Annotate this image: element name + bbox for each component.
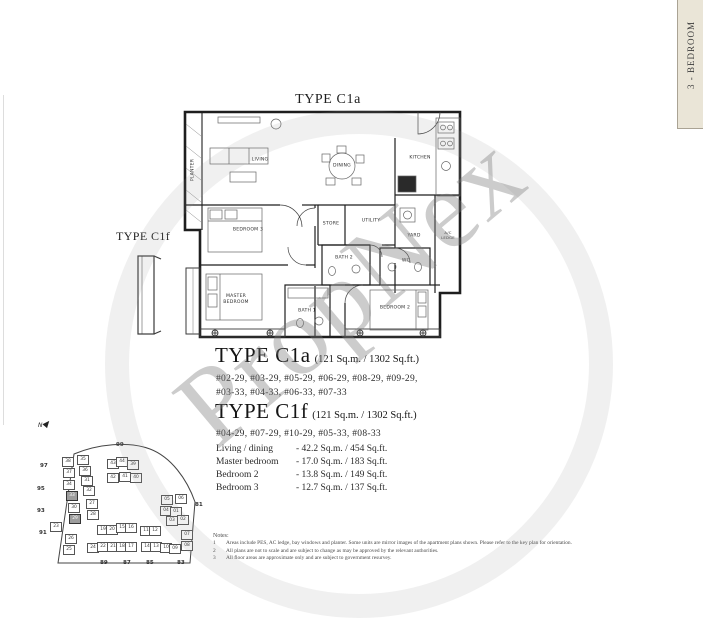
- keyplan-unit-31: 31: [81, 476, 93, 486]
- keyplan-unit-30: 30: [68, 503, 80, 513]
- room-label-bath1: BATH 1: [298, 309, 316, 314]
- keyplan-block-label-93: 93: [37, 508, 45, 514]
- keyplan-unit-08: 08: [181, 541, 193, 551]
- keyplan-unit-27: 27: [86, 499, 98, 509]
- area-label: Bedroom 2: [216, 470, 296, 480]
- room-label-living: LIVING: [252, 158, 269, 163]
- room-label-planter: PLANTER: [191, 159, 196, 181]
- area-value: - 13.8 Sq.m. / 149 Sq.ft.: [296, 470, 476, 480]
- key-plan: N 38353736343133323027292823262524222118…: [30, 418, 208, 578]
- area-row-living-dining: Living / dining - 42.2 Sq.m. / 454 Sq.ft…: [216, 444, 476, 454]
- area-label: Bedroom 3: [216, 483, 296, 493]
- note-text: All floor areas are approximate only and…: [226, 555, 392, 563]
- room-label-wc: WC: [402, 259, 410, 264]
- area-label: Living / dining: [216, 444, 296, 454]
- keyplan-unit-06: 06: [175, 494, 187, 504]
- room-label-ac-ledge: A/C LEDGE: [441, 231, 456, 241]
- room-label-yard: YARD: [407, 234, 420, 239]
- keyplan-unit-28: 28: [87, 510, 99, 520]
- floor-plan: PLANTER LIVING DINING KITCHEN STORE UTIL…: [130, 108, 470, 343]
- keyplan-unit-35: 35: [77, 455, 89, 465]
- scan-edge: [3, 95, 4, 425]
- keyplan-block-label-97: 97: [40, 463, 48, 469]
- room-label-bath2: BATH 2: [335, 256, 353, 261]
- keyplan-unit-16: 16: [125, 523, 137, 533]
- area-value: - 42.2 Sq.m. / 454 Sq.ft.: [296, 444, 476, 454]
- notes-title: Notes:: [213, 533, 693, 539]
- type-c1a-units-line1: #02-29, #03-29, #05-29, #06-29, #08-29, …: [216, 374, 418, 384]
- keyplan-block-label-87: 87: [123, 560, 131, 566]
- keyplan-unit-25: 25: [63, 545, 75, 555]
- plan-title-type-c1a: TYPE C1a: [258, 92, 398, 108]
- type-c1a-area: (121 Sq.m. / 1302 Sq.ft.): [315, 354, 419, 365]
- keyplan-block-label-99: 99: [116, 442, 124, 448]
- keyplan-block-label-83: 83: [177, 560, 185, 566]
- type-c1f-units-line1: #04-29, #07-29, #10-29, #05-33, #08-33: [216, 429, 381, 439]
- north-arrow: N: [38, 420, 50, 429]
- keyplan-unit-23: 23: [50, 522, 62, 532]
- keyplan-block-label-95: 95: [37, 486, 45, 492]
- area-value: - 17.0 Sq.m. / 183 Sq.ft.: [296, 457, 476, 467]
- keyplan-block-label-89: 89: [100, 560, 108, 566]
- keyplan-unit-29: 29: [69, 514, 81, 524]
- keyplan-unit-40: 40: [130, 473, 142, 483]
- category-tab-label: 3 - BEDROOM: [686, 21, 696, 107]
- keyplan-unit-09: 09: [169, 544, 181, 554]
- keyplan-unit-42: 42: [107, 473, 119, 483]
- notes-block: Notes: 1 Areas include PES, AC ledge, ba…: [213, 533, 693, 563]
- type-c1a-heading: TYPE C1a(121 Sq.m. / 1302 Sq.ft.): [215, 343, 419, 368]
- area-label: Master bedroom: [216, 457, 296, 467]
- area-row-master-bedroom: Master bedroom - 17.0 Sq.m. / 183 Sq.ft.: [216, 457, 476, 467]
- category-tab-3-bedroom: 3 - BEDROOM: [677, 0, 703, 129]
- keyplan-unit-05: 05: [161, 495, 173, 505]
- area-row-bedroom3: Bedroom 3 - 12.7 Sq.m. / 137 Sq.ft.: [216, 483, 476, 493]
- brochure-page: { "page": { "watermark": "PropNex", "tab…: [0, 0, 707, 600]
- room-label-kitchen: KITCHEN: [409, 156, 430, 161]
- type-c1f-area: (121 Sq.m. / 1302 Sq.ft.): [312, 410, 416, 421]
- room-label-master-bedroom: MASTER BEDROOM: [219, 294, 253, 306]
- note-number: 2: [213, 548, 226, 556]
- note-text: Areas include PES, AC ledge, bay windows…: [226, 540, 572, 548]
- keyplan-unit-26: 26: [65, 534, 77, 544]
- note-number: 3: [213, 555, 226, 563]
- keyplan-block-label-91: 91: [39, 530, 47, 536]
- room-label-store: STORE: [323, 222, 339, 227]
- keyplan-block-label-81: 81: [195, 502, 203, 508]
- area-row-bedroom2: Bedroom 2 - 13.8 Sq.m. / 149 Sq.ft.: [216, 470, 476, 480]
- keyplan-unit-32: 32: [83, 486, 95, 496]
- note-number: 1: [213, 540, 226, 548]
- keyplan-unit-17: 17: [125, 542, 137, 552]
- type-c1f-name: TYPE C1f: [215, 399, 308, 423]
- area-value: - 12.7 Sq.m. / 137 Sq.ft.: [296, 483, 476, 493]
- keyplan-unit-33: 33: [66, 491, 78, 501]
- type-c1a-name: TYPE C1a: [215, 343, 311, 367]
- note-item-3: 3 All floor areas are approximate only a…: [213, 555, 693, 563]
- room-label-utility: UTILITY: [362, 219, 380, 224]
- keyplan-unit-02: 02: [177, 515, 189, 525]
- room-label-bedroom2: BEDROOM 2: [380, 306, 410, 311]
- keyplan-unit-34: 34: [63, 480, 75, 490]
- keyplan-unit-12: 12: [149, 526, 161, 536]
- room-label-dining: DINING: [333, 164, 351, 169]
- keyplan-unit-36: 36: [79, 466, 91, 476]
- room-label-bedroom3: BEDROOM 3: [233, 228, 263, 233]
- keyplan-unit-07: 07: [181, 530, 193, 540]
- keyplan-unit-38: 38: [62, 457, 74, 467]
- keyplan-unit-39: 39: [127, 460, 139, 470]
- type-c1a-units-line2: #03-33, #04-33, #06-33, #07-33: [216, 388, 347, 398]
- keyplan-unit-37: 37: [63, 468, 75, 478]
- note-item-1: 1 Areas include PES, AC ledge, bay windo…: [213, 540, 693, 548]
- plan-title-type-c1f: TYPE C1f: [116, 229, 170, 244]
- type-c1f-heading: TYPE C1f(121 Sq.m. / 1302 Sq.ft.): [215, 399, 417, 424]
- keyplan-block-label-85: 85: [146, 560, 154, 566]
